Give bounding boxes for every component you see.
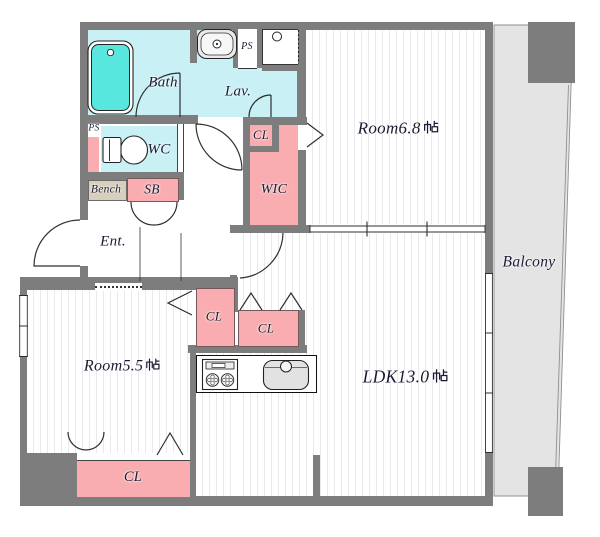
label-closet-mid-left: CL	[206, 310, 223, 323]
label-entrance: Ent.	[100, 235, 126, 250]
wall-segment	[20, 357, 27, 455]
pipe-space-left-box	[88, 137, 99, 172]
wall-stub	[313, 455, 320, 496]
kitchen-counter	[196, 355, 317, 393]
entrance-floor-lines	[140, 227, 181, 281]
label-wic: WIC	[261, 183, 288, 197]
wall-segment	[298, 150, 306, 225]
wall-bath-lav-divider	[190, 30, 197, 63]
bath-floor	[88, 30, 193, 117]
wall-wic-left	[243, 125, 250, 225]
wall-segment	[262, 64, 298, 71]
corridor-double-door-arcs	[196, 124, 242, 170]
label-pipe-space-top: PS	[241, 42, 253, 52]
label-ldk: LDK13.0	[363, 368, 448, 386]
wall-segment	[485, 453, 493, 497]
label-closet-mid-right: CL	[258, 322, 275, 335]
wall-segment	[230, 225, 310, 233]
label-shoe-box: SB	[144, 182, 160, 196]
shoe-box-door-arcs	[131, 202, 177, 225]
label-pipe-space-left: PS	[88, 124, 99, 134]
entrance-step-dotted-line	[95, 286, 142, 288]
entry-door-arc	[34, 220, 80, 266]
label-closet-bottom: CL	[124, 470, 142, 485]
wc-sliding-door	[177, 124, 184, 172]
washer-space-box	[262, 29, 298, 65]
wall-segment	[230, 275, 237, 285]
floor-plan: Bath Lav. PS PS WC Bench SB Ent. CL WIC …	[0, 0, 600, 537]
entrance-step-gap	[95, 283, 142, 291]
wall-segment	[297, 30, 306, 117]
wall-segment	[243, 117, 307, 125]
wic-box-arm	[279, 125, 298, 152]
wall-segment	[20, 290, 27, 295]
balcony-pillar-bottom	[528, 467, 563, 516]
label-lavatory: Lav.	[225, 85, 251, 100]
label-wc: WC	[147, 143, 170, 158]
label-balcony: Balcony	[503, 254, 556, 270]
label-bench: Bench	[91, 184, 121, 196]
balcony-railing-line	[555, 85, 569, 490]
label-room-5-5: Room5.5	[84, 357, 160, 374]
balcony-pillar-top	[528, 22, 575, 83]
wall-segment	[20, 496, 493, 506]
label-room-6-8: Room6.8	[358, 119, 439, 136]
wall-segment	[485, 30, 493, 273]
label-bath: Bath	[148, 76, 178, 91]
label-closet-upper: CL	[253, 129, 269, 142]
window-ldk-balcony	[485, 273, 494, 453]
